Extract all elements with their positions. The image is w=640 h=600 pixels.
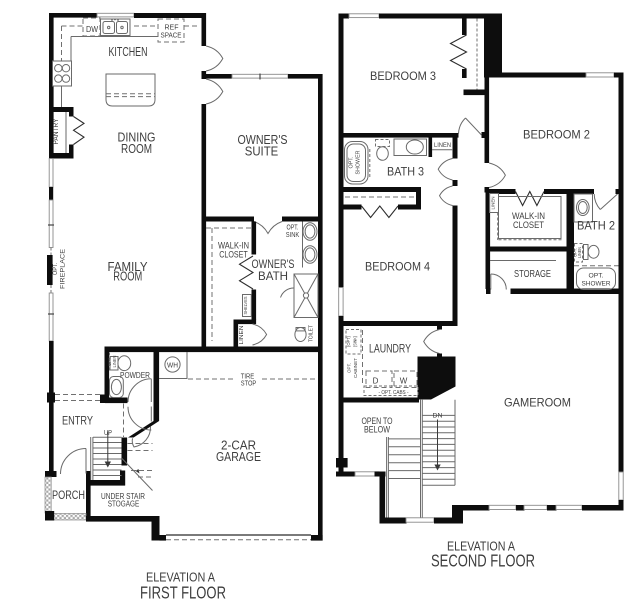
svg-text:OPT.: OPT. xyxy=(347,363,352,373)
svg-text:OPT.: OPT. xyxy=(53,263,59,275)
svg-text:LINEN: LINEN xyxy=(112,356,117,368)
svg-text:(SINK): (SINK) xyxy=(353,336,358,347)
svg-text:BELOW: BELOW xyxy=(364,425,390,435)
svg-text:LINEN: LINEN xyxy=(490,197,495,210)
svg-text:PORCH: PORCH xyxy=(52,488,85,502)
svg-text:CLOSET: CLOSET xyxy=(219,250,248,260)
svg-text:ROOM: ROOM xyxy=(121,142,152,156)
svg-text:GARAGE: GARAGE xyxy=(216,450,261,464)
svg-text:WH: WH xyxy=(167,363,178,370)
svg-text:LINEN: LINEN xyxy=(239,325,245,344)
svg-text:STORAGE: STORAGE xyxy=(514,268,551,280)
svg-text:DN: DN xyxy=(433,414,443,420)
svg-text:SECOND FLOOR: SECOND FLOOR xyxy=(431,551,535,571)
svg-text:W: W xyxy=(400,377,408,386)
svg-text:D: D xyxy=(373,377,379,386)
svg-text:SUITE: SUITE xyxy=(245,145,279,159)
svg-text:FIREPLACE: FIREPLACE xyxy=(61,249,67,289)
svg-text:SINK: SINK xyxy=(286,232,300,239)
svg-text:SHOWER: SHOWER xyxy=(356,150,362,174)
svg-text:- OPT. CABS -: - OPT. CABS - xyxy=(379,390,409,396)
svg-text:CLOSET: CLOSET xyxy=(513,220,544,231)
svg-text:STOP: STOP xyxy=(241,381,257,388)
svg-text:TIRE: TIRE xyxy=(241,374,255,381)
svg-text:BEDROOM 4: BEDROOM 4 xyxy=(365,260,430,274)
svg-text:BATH 3: BATH 3 xyxy=(387,165,424,179)
svg-text:STOGAGE: STOGAGE xyxy=(108,500,140,509)
svg-text:BATH 2: BATH 2 xyxy=(577,219,615,233)
svg-text:SHOWER: SHOWER xyxy=(582,281,611,288)
svg-text:SPACE: SPACE xyxy=(161,31,182,40)
svg-text:SHELVES: SHELVES xyxy=(243,297,248,315)
svg-text:LINEN: LINEN xyxy=(577,247,582,258)
svg-text:UP: UP xyxy=(104,430,112,437)
svg-text:OPT.: OPT. xyxy=(287,225,299,232)
svg-text:TOILET: TOILET xyxy=(308,325,314,342)
svg-text:OPT.: OPT. xyxy=(349,156,355,168)
svg-text:BEDROOM 2: BEDROOM 2 xyxy=(523,128,590,142)
svg-text:LAUNDRY: LAUNDRY xyxy=(369,344,411,356)
svg-text:CABINET: CABINET xyxy=(353,358,358,378)
svg-text:FIRST FLOOR: FIRST FLOOR xyxy=(140,583,226,600)
svg-text:BEDROOM 3: BEDROOM 3 xyxy=(370,69,436,83)
svg-text:DW: DW xyxy=(86,25,98,34)
svg-text:OPT.: OPT. xyxy=(589,273,604,280)
svg-text:KITCHEN: KITCHEN xyxy=(109,45,148,59)
svg-text:PANTRY: PANTRY xyxy=(51,119,60,145)
svg-text:GAMEROOM: GAMEROOM xyxy=(504,396,571,410)
svg-text:POWDER: POWDER xyxy=(120,370,150,380)
svg-text:(OPT): (OPT) xyxy=(346,336,351,347)
svg-text:ROOM: ROOM xyxy=(113,270,142,284)
svg-text:LINEN: LINEN xyxy=(434,142,451,149)
svg-text:ENTRY: ENTRY xyxy=(62,416,93,428)
svg-text:BATH: BATH xyxy=(258,269,288,283)
